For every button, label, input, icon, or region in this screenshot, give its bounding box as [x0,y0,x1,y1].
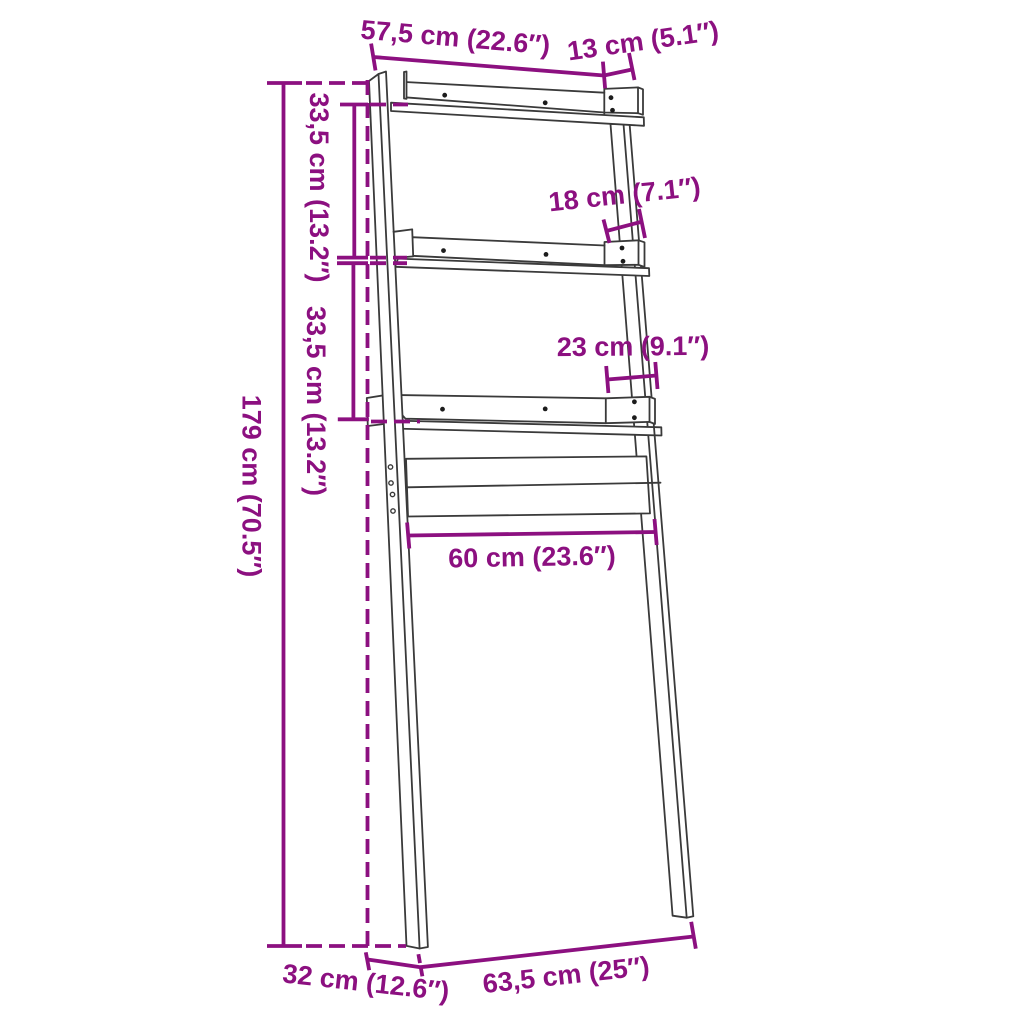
svg-text:60 cm (23.6″): 60 cm (23.6″) [448,541,616,574]
svg-text:23 cm (9.1″): 23 cm (9.1″) [557,331,710,362]
svg-text:33,5 cm (13.2″): 33,5 cm (13.2″) [301,306,331,496]
svg-text:179 cm (70.5″): 179 cm (70.5″) [237,395,267,578]
svg-text:33,5 cm (13.2″): 33,5 cm (13.2″) [304,92,334,282]
